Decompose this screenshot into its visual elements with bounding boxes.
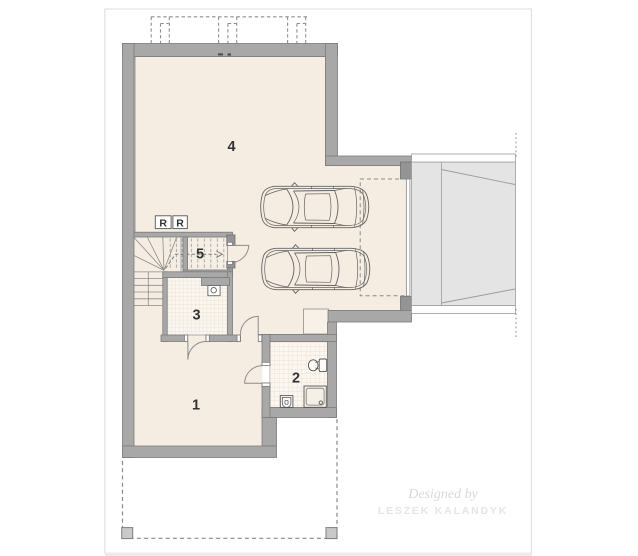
svg-text:5: 5	[196, 247, 204, 263]
svg-text:R: R	[159, 217, 167, 229]
svg-text:Designed by: Designed by	[407, 487, 478, 502]
svg-text:4: 4	[227, 139, 235, 155]
svg-text:2: 2	[292, 371, 300, 387]
svg-text:R: R	[176, 217, 184, 229]
svg-text:LESZEK KALANDYK: LESZEK KALANDYK	[378, 505, 508, 517]
svg-text:3: 3	[192, 308, 200, 324]
svg-text:1: 1	[192, 398, 200, 414]
